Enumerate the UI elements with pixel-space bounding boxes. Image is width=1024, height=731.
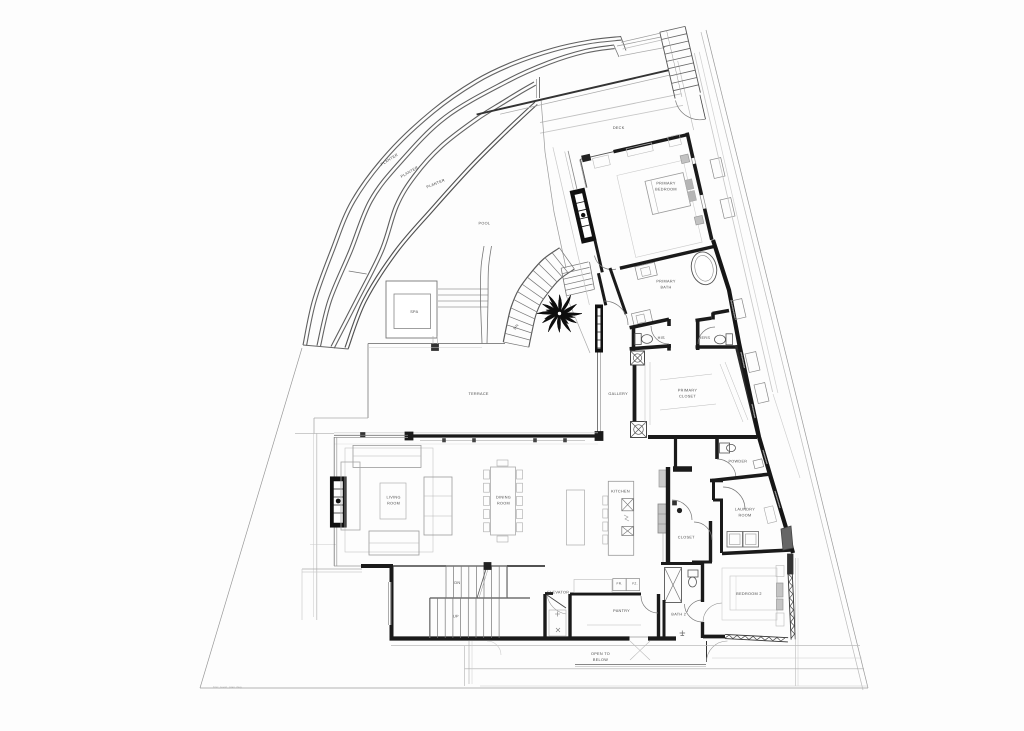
svg-text:LIVING: LIVING (386, 495, 400, 499)
svg-text:LAUNDRY: LAUNDRY (735, 507, 755, 511)
svg-text:FR.: FR. (617, 582, 623, 586)
svg-text:ROOM: ROOM (497, 501, 510, 505)
svg-text:BATH: BATH (660, 285, 671, 289)
svg-text:ROOM: ROOM (387, 501, 400, 505)
svg-text:PANTRY: PANTRY (613, 609, 630, 613)
svg-text:POOL: POOL (479, 222, 491, 226)
svg-text:PRIMARY: PRIMARY (656, 181, 675, 185)
svg-text:POWDER: POWDER (728, 460, 747, 464)
svg-text:TERRACE: TERRACE (468, 392, 488, 396)
svg-text:UP: UP (453, 615, 459, 619)
svg-text:OPEN TO: OPEN TO (591, 652, 610, 656)
svg-text:DECK: DECK (613, 126, 625, 130)
svg-text:PRIMARY: PRIMARY (678, 388, 697, 392)
svg-text:DINING: DINING (496, 495, 511, 499)
svg-text:KITCHEN: KITCHEN (611, 490, 630, 494)
svg-text:ELEVATOR: ELEVATOR (547, 590, 569, 594)
svg-text:SPA: SPA (410, 310, 418, 314)
svg-text:HERS: HERS (698, 336, 710, 340)
svg-text:CLOSET: CLOSET (679, 394, 696, 398)
svg-text:CLOSET: CLOSET (678, 535, 695, 539)
svg-text:BEDROOM: BEDROOM (655, 187, 677, 191)
svg-text:BELOW: BELOW (593, 658, 608, 662)
svg-text:DN: DN (454, 581, 460, 585)
svg-text:HIS: HIS (658, 336, 665, 340)
svg-text:ROOM: ROOM (738, 513, 751, 517)
svg-text:first_level_plan.dwg: first_level_plan.dwg (213, 686, 242, 689)
svg-text:FZ.: FZ. (632, 582, 638, 586)
svg-text:PRIMARY: PRIMARY (656, 279, 675, 283)
svg-text:BEDROOM 2: BEDROOM 2 (736, 592, 762, 596)
svg-text:GALLERY: GALLERY (608, 392, 628, 396)
svg-text:BATH 2: BATH 2 (671, 612, 686, 616)
